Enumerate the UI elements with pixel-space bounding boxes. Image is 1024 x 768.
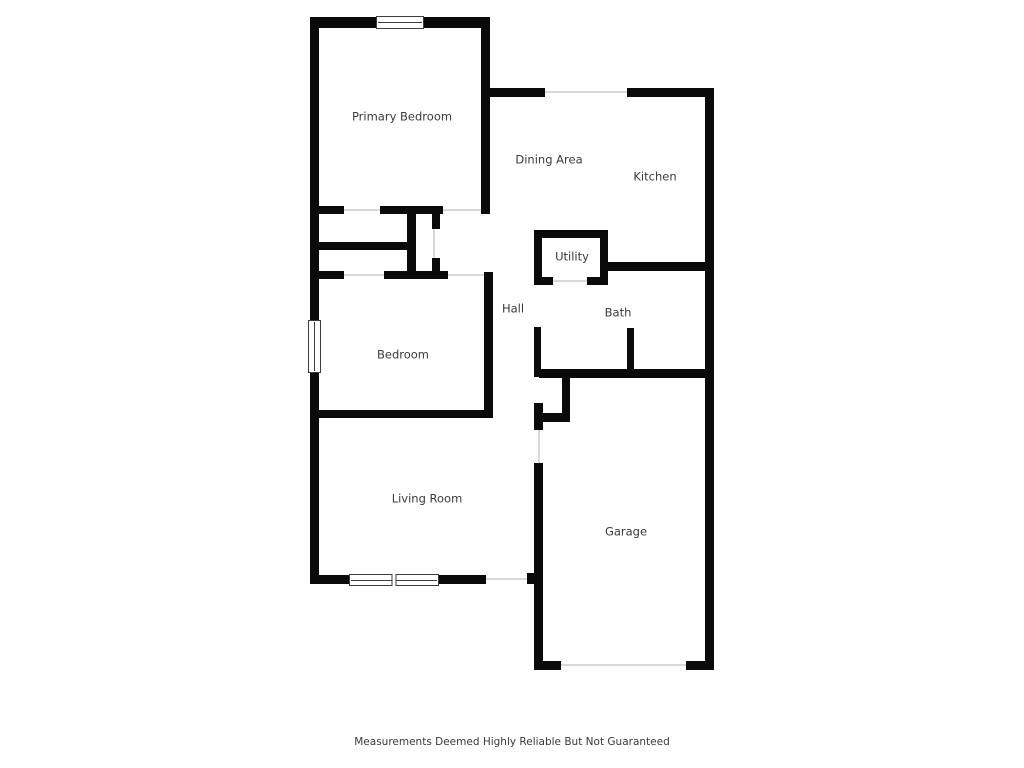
door-opening-line [443,209,481,211]
room-label-living-room: Living Room [392,493,463,505]
window-glass-line [378,22,422,23]
wall-segment [481,88,545,97]
door-opening-line [448,274,484,276]
room-label-hall: Hall [502,303,524,315]
room-label-primary-bedroom: Primary Bedroom [352,111,452,123]
wall-segment [310,17,319,584]
floorplan-canvas: Primary BedroomDining AreaKitchenUtility… [0,0,1024,768]
window [349,574,439,586]
door-opening-line [344,209,380,211]
door-opening-line [433,229,435,258]
wall-segment [534,230,608,238]
wall-segment [534,277,553,285]
wall-segment [481,17,490,214]
wall-segment [627,88,714,97]
window [376,16,424,29]
wall-segment [310,206,344,214]
window [308,320,321,373]
wall-segment [384,271,448,279]
door-opening-line [561,664,686,666]
window-pane-divider [392,574,397,586]
room-label-utility: Utility [555,251,589,263]
door-opening-line [344,274,384,276]
door-opening-line [538,430,540,463]
room-label-bath: Bath [605,307,632,319]
wall-segment [627,328,634,374]
wall-segment [407,206,416,278]
floor-plan: Primary BedroomDining AreaKitchenUtility… [0,0,1024,768]
wall-segment [600,262,714,271]
wall-segment [318,242,408,250]
wall-segment [310,271,344,279]
wall-segment [587,277,608,285]
room-label-garage: Garage [605,526,647,538]
door-opening-line [545,91,627,93]
room-label-kitchen: Kitchen [633,171,676,183]
wall-segment [534,463,543,670]
room-label-dining-area: Dining Area [515,154,582,166]
wall-segment [310,410,493,418]
wall-segment [484,272,493,418]
door-opening-line [553,280,587,282]
wall-segment [534,661,561,670]
room-label-bedroom: Bedroom [377,349,429,361]
door-opening-line [486,578,527,580]
wall-segment [686,661,714,670]
window-glass-line [314,322,315,371]
wall-segment [534,403,543,430]
wall-segment [705,88,714,670]
disclaimer-text: Measurements Deemed Highly Reliable But … [0,736,1024,748]
wall-segment [432,213,440,229]
